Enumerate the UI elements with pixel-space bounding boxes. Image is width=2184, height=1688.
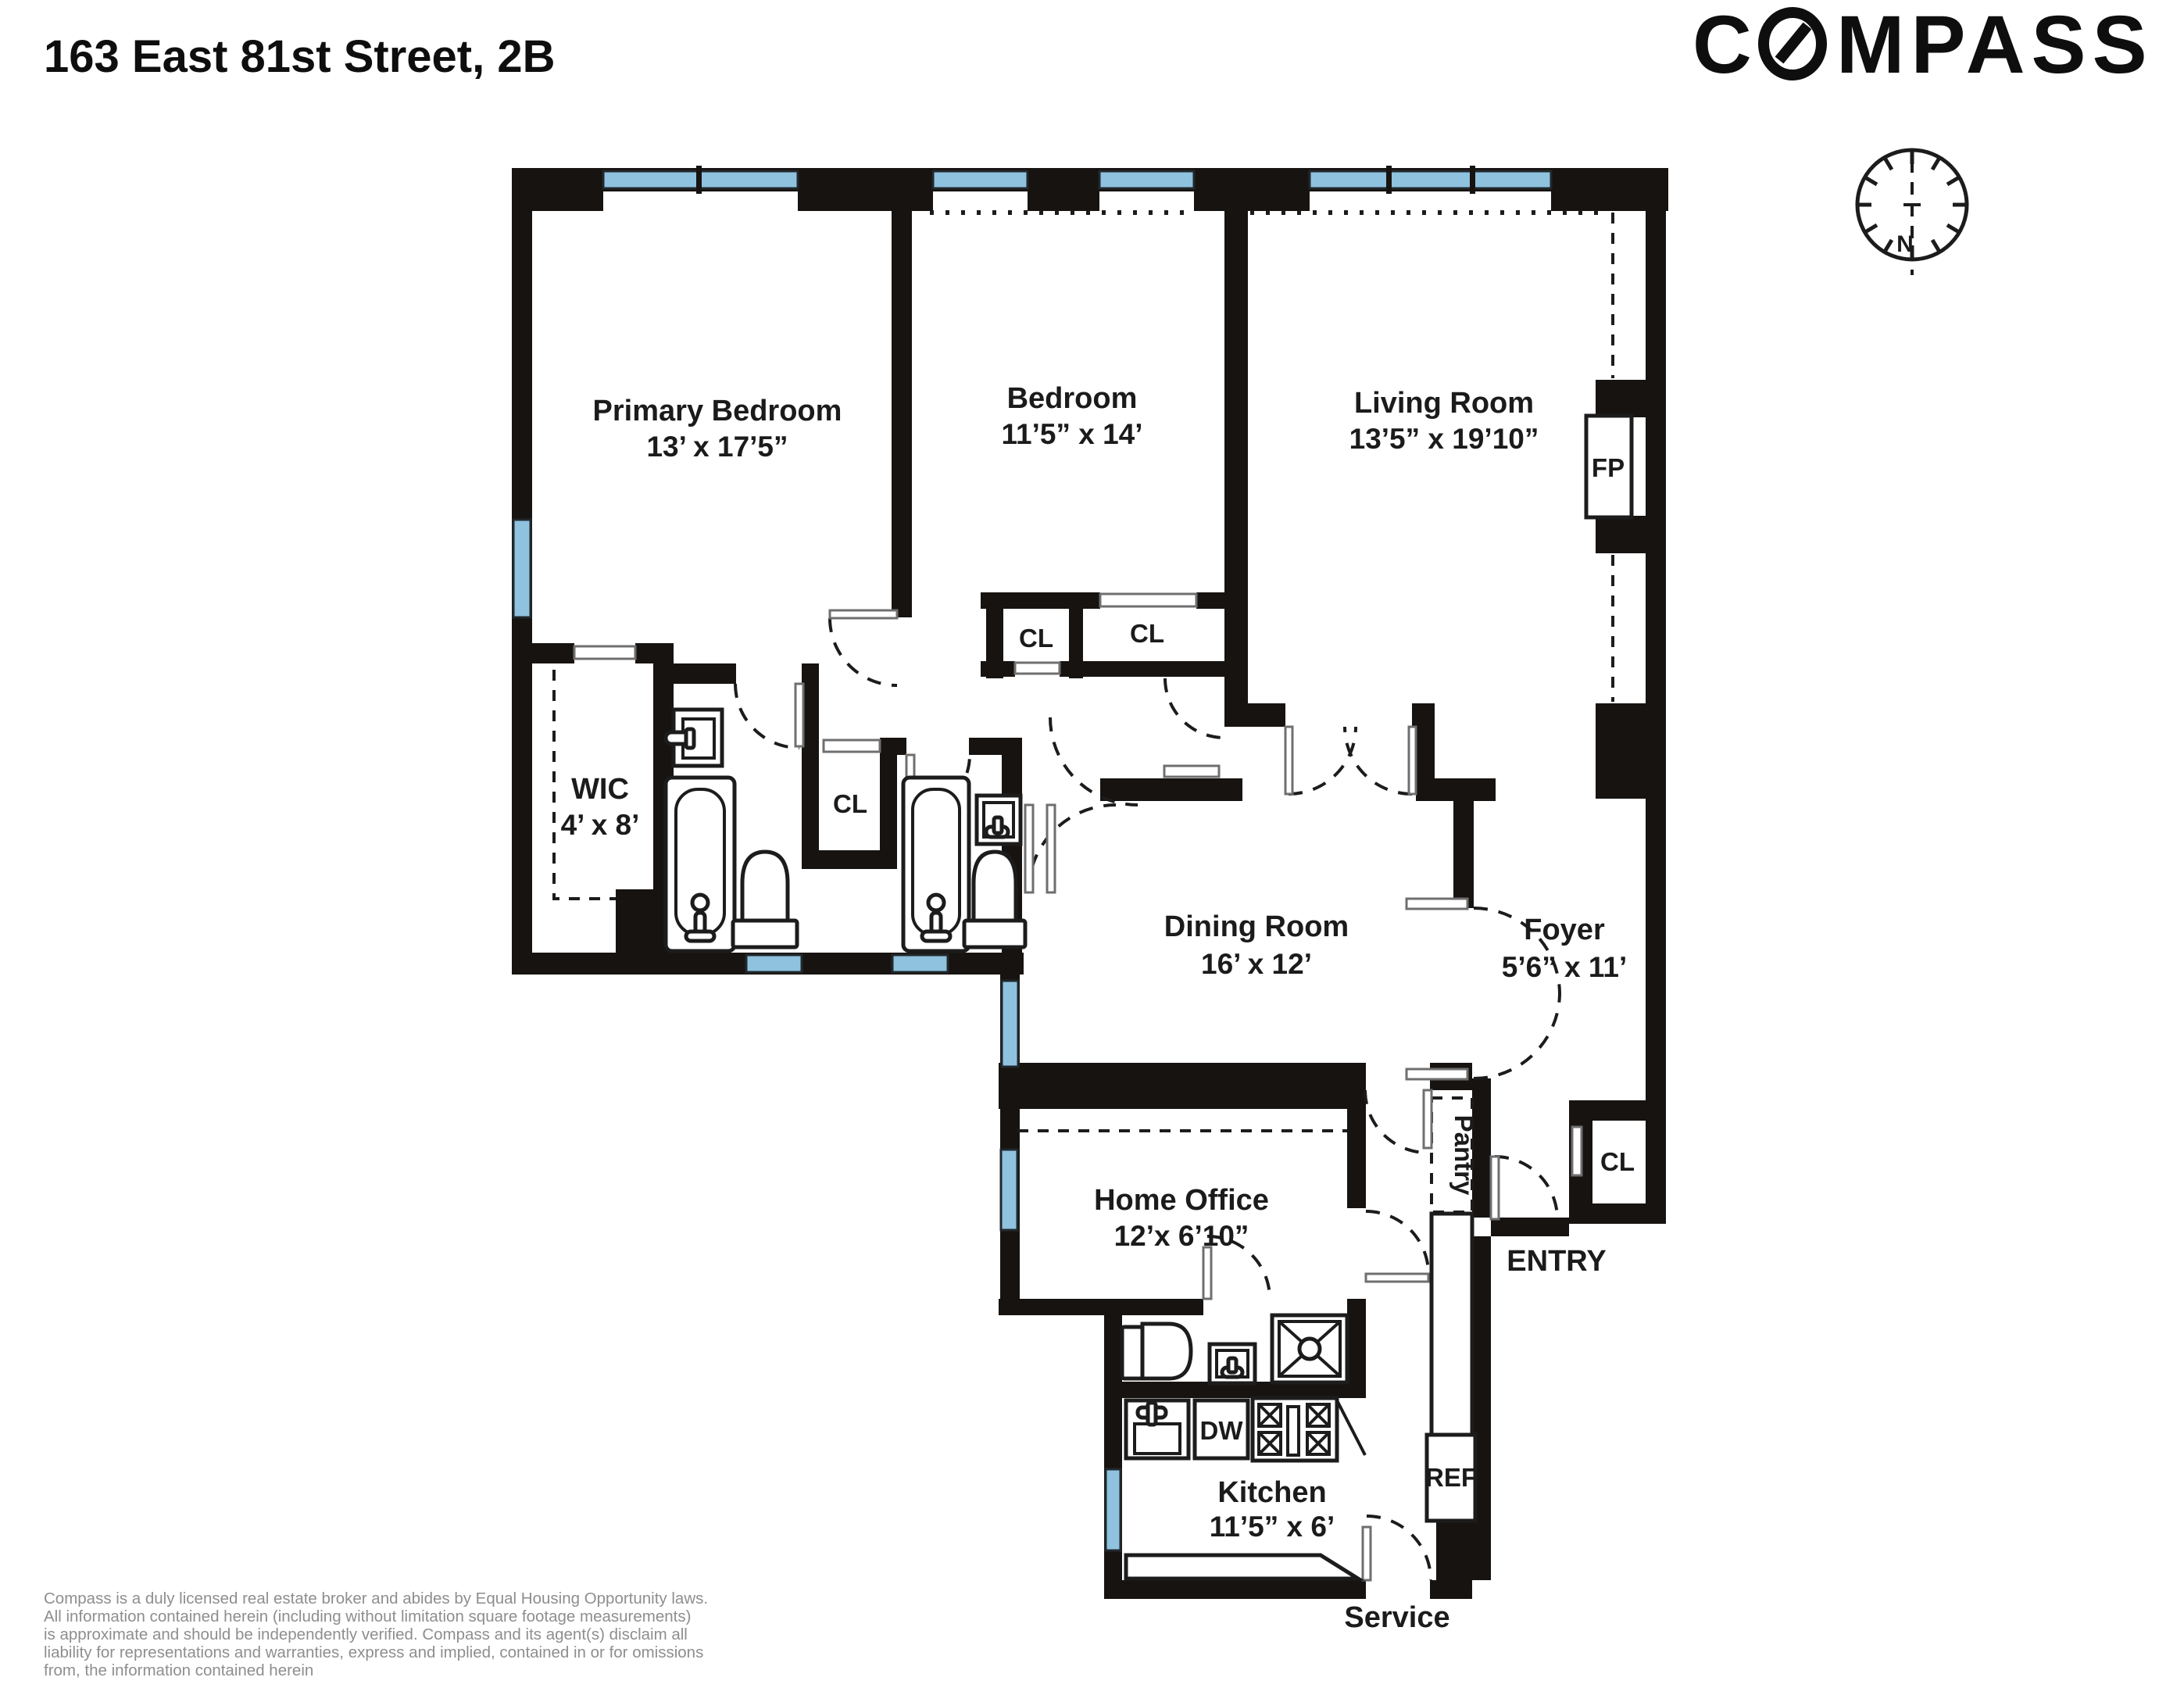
door-arc xyxy=(1345,727,1412,794)
room-dims-primary-bedroom: 13’ x 17’5” xyxy=(646,431,788,463)
window xyxy=(1099,171,1194,188)
door-arc xyxy=(1366,1211,1428,1274)
room-dims-bedroom: 11’5” x 14’ xyxy=(1001,418,1142,450)
room-dims-kitchen: 11’5” x 6’ xyxy=(1210,1511,1335,1543)
room-label-kitchen: Kitchen xyxy=(1217,1476,1326,1509)
floorplan-canvas: 163 East 81st Street, 2B C MPASS N xyxy=(0,0,2184,1688)
room-label-dining-room: Dining Room xyxy=(1164,910,1349,943)
stove-icon xyxy=(1253,1398,1337,1461)
room-label-bedroom: Bedroom xyxy=(1007,382,1138,415)
room-label-home-office: Home Office xyxy=(1094,1184,1269,1217)
cabinet-run xyxy=(1432,1214,1472,1435)
door-arc xyxy=(735,684,799,748)
logo-needle-icon xyxy=(1779,26,1807,60)
room-label-wic: WIC xyxy=(571,773,629,806)
room-dims-foyer: 5’6” x 11’ xyxy=(1502,951,1627,983)
sliding-door xyxy=(1164,766,1219,777)
door-leaf xyxy=(1424,1090,1432,1148)
window xyxy=(1002,981,1018,1067)
sink-icon xyxy=(666,710,722,766)
closet-label: CL xyxy=(1600,1147,1635,1176)
closet-label: CL xyxy=(1130,619,1164,648)
door-arc xyxy=(1165,678,1224,738)
disclaimer-line: from, the information contained herein xyxy=(44,1661,313,1679)
door-arc xyxy=(1365,1090,1428,1153)
kitchen-sink-icon xyxy=(1126,1400,1189,1458)
window-mullion xyxy=(1470,166,1475,194)
compass-north-label: N xyxy=(1896,231,1914,257)
door-arc xyxy=(1028,805,1116,892)
disclaimer-line: is approximate and should be independent… xyxy=(44,1625,688,1643)
refrigerator-label: REF xyxy=(1425,1463,1477,1492)
sliding-door xyxy=(574,646,635,659)
toilet-icon xyxy=(1122,1324,1191,1379)
page-title: 163 East 81st Street, 2B xyxy=(44,31,555,82)
window-mullion xyxy=(696,166,702,194)
door-arc xyxy=(1367,1516,1431,1580)
door-leaf xyxy=(795,684,803,746)
entry-label: ENTRY xyxy=(1507,1245,1606,1278)
door-arc xyxy=(1474,994,1560,1078)
closet-label: CL xyxy=(833,789,867,818)
disclaimer-line: Compass is a duly licensed real estate b… xyxy=(44,1590,708,1608)
kitchen-counter xyxy=(1126,1555,1358,1579)
window-mullion xyxy=(1386,166,1392,194)
window xyxy=(1310,171,1551,188)
window xyxy=(1001,1150,1017,1230)
room-label-primary-bedroom: Primary Bedroom xyxy=(593,395,842,427)
door-leaf xyxy=(1047,805,1055,892)
compass-logo: C MPASS xyxy=(1693,0,2154,91)
disclaimer-line: All information contained herein (includ… xyxy=(44,1608,691,1625)
sliding-door xyxy=(824,740,880,752)
room-dims-home-office: 12’x 6’10” xyxy=(1114,1220,1249,1252)
bathtub-icon xyxy=(903,778,969,951)
window xyxy=(892,955,948,972)
room-label-living-room: Living Room xyxy=(1354,387,1534,420)
floorplan-page: 163 East 81st Street, 2B C MPASS N xyxy=(0,0,2184,1688)
bathtub-icon xyxy=(666,778,735,951)
door-leaf xyxy=(1409,727,1416,794)
door-arc xyxy=(1495,1157,1557,1219)
door-leaf xyxy=(1363,1527,1371,1580)
toilet-icon xyxy=(733,852,797,947)
sink-icon xyxy=(977,796,1021,844)
window xyxy=(746,955,802,972)
sink-icon xyxy=(1210,1344,1255,1383)
pocket-door xyxy=(1407,1069,1467,1079)
room-dims-living-room: 13’5” x 19’10” xyxy=(1349,423,1539,455)
door-arc xyxy=(830,618,897,685)
pocket-door xyxy=(1407,899,1467,909)
room-label-foyer: Foyer xyxy=(1524,914,1605,946)
logo-letter-c: C xyxy=(1693,0,1758,91)
door-arc xyxy=(1289,727,1356,794)
door-leaf xyxy=(1366,1274,1428,1282)
sliding-door xyxy=(1100,594,1196,606)
room-dims-dining-room: 16’ x 12’ xyxy=(1201,948,1312,980)
door-leaf xyxy=(1491,1157,1499,1219)
service-label: Service xyxy=(1344,1601,1449,1634)
sliding-door xyxy=(1572,1127,1582,1175)
room-dims-wic: 4’ x 8’ xyxy=(561,809,640,841)
compass-rose-icon: N xyxy=(1857,150,1967,275)
window xyxy=(513,520,531,617)
shower-icon xyxy=(1272,1315,1347,1382)
disclaimer-line: liability for representations and warran… xyxy=(44,1643,703,1661)
fireplace-label: FP xyxy=(1592,453,1625,482)
door-leaf xyxy=(1025,805,1033,892)
sliding-door xyxy=(1015,663,1060,674)
door-leaf xyxy=(1285,727,1292,794)
dishwasher-label: DW xyxy=(1200,1416,1244,1445)
window xyxy=(1106,1469,1121,1550)
logo-letters-mpass: MPASS xyxy=(1836,0,2154,91)
closet-label: CL xyxy=(1019,624,1053,653)
counter-edge xyxy=(1337,1400,1365,1455)
door-leaf xyxy=(830,610,897,618)
disclaimer: Compass is a duly licensed real estate b… xyxy=(44,1590,708,1679)
window xyxy=(933,171,1028,188)
door-leaf xyxy=(1203,1247,1211,1299)
pantry-label: Pantry xyxy=(1449,1115,1478,1196)
